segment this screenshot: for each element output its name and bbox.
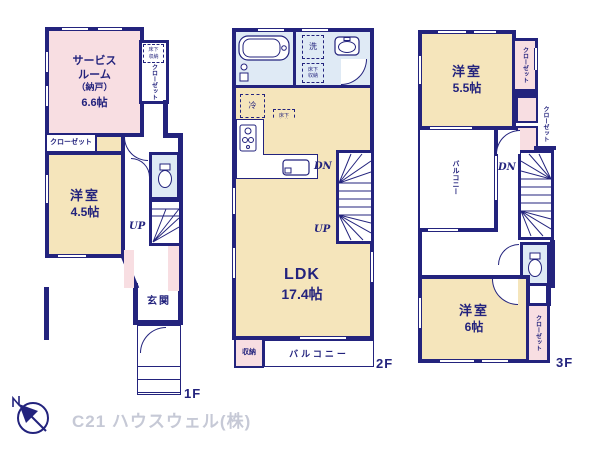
kitchen-counter-notch (263, 119, 318, 155)
closet-1f: クローゼット (45, 133, 97, 153)
entrance-porch (137, 325, 181, 395)
porch-steps (138, 354, 180, 394)
closet-label: クローゼット (143, 64, 165, 100)
window (58, 254, 86, 258)
balcony-door-window (430, 126, 472, 130)
floor-label-3f: 3F (556, 355, 573, 370)
washbasin-icon (334, 36, 360, 56)
window (474, 30, 496, 34)
underfloor-storage-box: 床下収納 (143, 44, 164, 63)
stairs-up-label: UP (314, 224, 330, 235)
wall-fill (124, 250, 134, 288)
entrance-label: 玄関 (137, 294, 181, 308)
room-service-name3: （納戸） (76, 82, 112, 94)
door-arc (341, 59, 367, 85)
stove-icon (239, 124, 257, 152)
room-service-name2: ルーム (78, 68, 111, 82)
window (438, 30, 466, 34)
window (62, 27, 88, 31)
window (418, 56, 422, 84)
underfloor-storage-box: 床下収納 (302, 63, 324, 83)
door-arc (124, 137, 148, 161)
balcony-door-window (428, 228, 458, 232)
wall-segment (534, 146, 556, 150)
window (232, 248, 236, 278)
window (45, 52, 49, 72)
room-western-45: 洋室 4.5帖 (45, 151, 125, 258)
bathroom (236, 32, 296, 88)
window (302, 28, 328, 32)
room-service: サービス ルーム （納戸） 6.6帖 (45, 27, 144, 137)
laundry-box: 洗 (302, 35, 324, 59)
door-arc (140, 327, 166, 353)
toilet-icon (157, 163, 173, 189)
toilet-room-1f (149, 152, 180, 200)
wall-segment (44, 287, 49, 340)
compass-icon (8, 393, 54, 439)
wall-segment (418, 228, 422, 279)
window (45, 175, 49, 203)
window (258, 28, 284, 32)
ldk-label: LDK 17.4帖 (262, 262, 342, 306)
stairs-treads (152, 202, 179, 243)
closet-3f-bottom: クローゼット (526, 303, 550, 363)
closet-column-1f: 床下収納 クローゼット (139, 40, 169, 104)
brand-name: C21 ハウスウェル(株) (72, 407, 251, 432)
window (370, 252, 374, 282)
shower-fixture-icon (239, 63, 251, 83)
balcony-2f: バルコニー (264, 340, 374, 367)
storage-2f: 収納 (234, 338, 264, 368)
bathtub-icon (238, 35, 290, 61)
room-western-55: 洋室 5.5帖 (418, 30, 516, 130)
door-arc (496, 130, 520, 154)
floorplan-canvas: サービス ルーム （納戸） 6.6帖 床下収納 クローゼット クローゼット (0, 0, 600, 450)
room-service-size: 6.6帖 (81, 96, 107, 110)
window (440, 359, 474, 363)
room-western-45-label: 洋室 4.5帖 (49, 155, 121, 254)
stairs-up-label: UP (129, 221, 145, 232)
room-western-55-label: 洋室 5.5帖 (422, 34, 512, 126)
stairs-3f (518, 150, 554, 240)
closet-3f-mid-a (516, 96, 538, 123)
stairs-2f (336, 150, 374, 244)
room-service-name: サービス (73, 54, 117, 68)
stairs-down-label: DN (498, 162, 516, 173)
refrigerator-box: 冷 (240, 94, 265, 118)
room-service-label: サービス ルーム （納戸） 6.6帖 (49, 31, 140, 133)
closet-label: クローゼット (47, 135, 95, 151)
wall-segment (550, 240, 555, 288)
balcony-3f: バルコニー (418, 126, 498, 232)
wall-segment (163, 100, 168, 136)
floor-label-1f: 1F (184, 386, 201, 401)
window (45, 86, 49, 106)
window (418, 298, 422, 328)
washroom: 洗 床下収納 (296, 32, 370, 88)
door-arc (498, 244, 519, 265)
window (98, 27, 122, 31)
kitchen-sink-icon (282, 159, 310, 176)
stairs-treads (521, 153, 551, 237)
stairs-down-label: DN (314, 161, 332, 172)
floor-label-2f: 2F (376, 356, 393, 371)
window (482, 359, 508, 363)
wall-segment (546, 286, 551, 306)
stairs-treads (339, 153, 371, 241)
window (232, 188, 236, 214)
stairs-1f (149, 199, 182, 246)
wall-fill (168, 246, 179, 291)
closet-label-outside: クローゼット (539, 98, 552, 150)
window (534, 48, 538, 70)
